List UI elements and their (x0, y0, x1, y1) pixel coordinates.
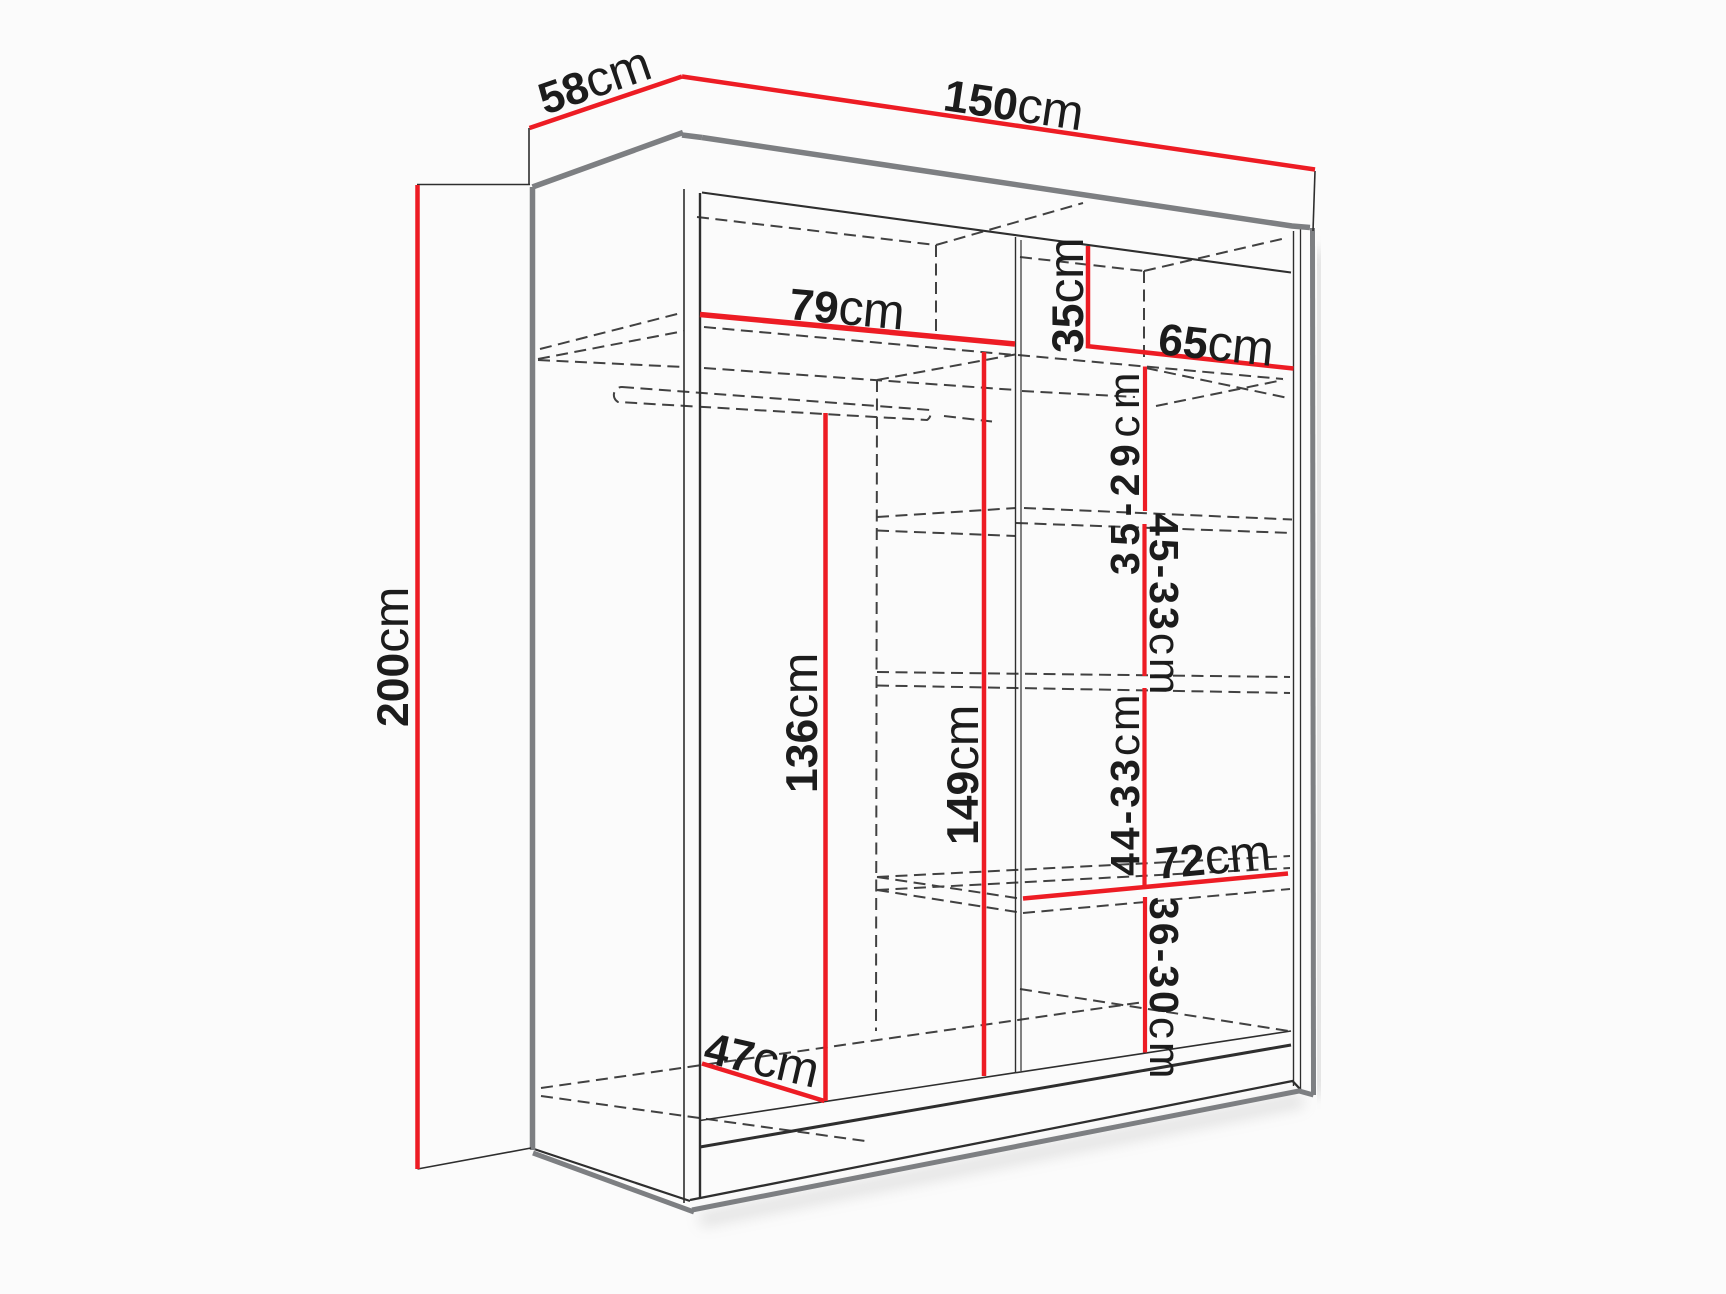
svg-text:36-30cm: 36-30cm (1140, 897, 1189, 1082)
svg-text:136cm: 136cm (772, 653, 828, 793)
svg-text:45-33cm: 45-33cm (1140, 513, 1189, 698)
svg-text:35cm: 35cm (1038, 238, 1094, 353)
svg-text:149cm: 149cm (933, 705, 989, 845)
svg-text:200cm: 200cm (363, 587, 419, 727)
svg-text:44-33cm: 44-33cm (1100, 691, 1149, 876)
